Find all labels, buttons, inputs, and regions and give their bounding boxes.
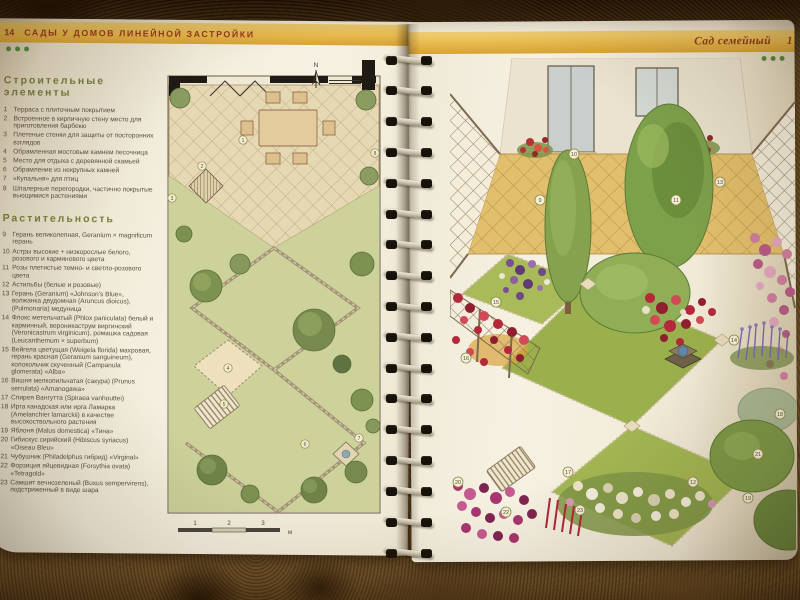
svg-text:19: 19 [745,496,751,502]
item-text: Шпалерные перегородки, частично покрытые… [13,185,155,201]
coil [383,331,435,343]
bench-illustration [486,446,535,492]
svg-text:6: 6 [304,442,307,448]
svg-text:1: 1 [242,138,245,144]
coil [383,393,435,405]
left-header-title: САДЫ У ДОМОВ ЛИНЕЙНОЙ ЗАСТРОЙКИ [24,27,255,39]
item-text: Самшит вечнозеленый (Buxus sempervirens)… [10,479,152,495]
illustration-marker: 11 [671,195,681,205]
item-number: 14 [1,314,11,344]
item-text: Форзиция яйцевидная (Forsythia ovata) «T… [10,462,152,478]
svg-text:2: 2 [201,164,204,170]
plan-marker: 3 [168,194,176,202]
illustration-marker: 10 [569,149,579,159]
item-text: Обрамленная мостовым камнем песочница [13,148,155,157]
spiral-binding [383,54,435,559]
svg-text:3: 3 [171,196,174,202]
svg-text:14: 14 [731,338,737,344]
item-number: 2 [3,115,13,130]
right-header-title: Сад семейный [694,35,771,47]
svg-text:N: N [314,62,319,69]
rating-dots-left [6,46,29,51]
item-text: Чубушник (Philadelphus гибрид) «Virginal… [10,453,152,462]
list-item: 15 Вейгела цветущая (Weigela florida) ма… [1,346,153,377]
green-dot [15,46,20,51]
center-shrub [580,253,690,333]
svg-text:17: 17 [565,470,571,476]
section-heading-plants: Растительность [3,212,121,225]
svg-text:8: 8 [374,151,377,157]
item-text: Место для отдыха с деревянной скамьей [13,158,155,167]
section-heading-building: Строительные элементы [4,74,122,100]
item-number: 7 [3,176,13,184]
coil [383,547,435,559]
illustration-marker: 21 [753,449,763,459]
right-page-number: 1 [787,35,793,47]
list-item: 4 Обрамленная мостовым камнем песочница [3,148,155,157]
item-number: 18 [1,403,11,426]
svg-text:9: 9 [538,198,541,204]
svg-text:22: 22 [503,510,509,516]
plan-marker: 8 [371,149,379,157]
list-item: 10 Астры высокие + низкорослые белого, р… [2,248,154,264]
coil [383,301,435,313]
item-text: Гибискус сирийский (Hibiscus syriacus) «… [11,437,153,453]
green-dot [6,46,11,51]
svg-text:15: 15 [493,300,499,306]
item-text: Ирга канадская или ирга Ламарка (Amelanc… [11,403,153,427]
svg-text:11: 11 [673,198,679,204]
list-item: 18 Ирга канадская или ирга Ламарка (Amel… [1,403,153,427]
illustration-marker: 23 [575,505,585,515]
right-header-band: Сад семейный 1 [408,30,794,54]
illustration-marker: 13 [715,177,725,187]
item-text: Обрамление из некрупных камней [13,167,155,176]
building-elements-list: 1 Терраса с плиточным покрытием 2 Встрое… [3,106,156,201]
list-item: 13 Герань (Geranium) «Johnson's Blue», в… [2,290,154,314]
list-item: 6 Обрамление из некрупных камней [3,167,155,176]
list-item: 8 Шпалерные перегородки, частично покрыт… [3,185,155,201]
item-text: Вишня мелкопильчатая (сакура) (Prunus se… [11,378,153,394]
left-page-number: 14 [4,27,14,37]
list-item: 2 Встроенное в кирпичную стену место для… [3,115,155,131]
list-item: 1 Терраса с плиточным покрытием [4,106,156,115]
list-item: 9 Герань великолепная, Geranium × magnif… [2,231,154,247]
list-item: 3 Плетеные стенки для защиты от посторон… [3,132,155,148]
item-text: Встроенное в кирпичную стену место для п… [13,115,155,131]
svg-text:м: м [288,530,292,536]
left-header-band: 14 САДЫ У ДОМОВ ЛИНЕЙНОЙ ЗАСТРОЙКИ [0,21,412,46]
list-item: 22 Форзиция яйцевидная (Forsythia ovata)… [0,462,152,478]
illustration-marker: 12 [688,477,698,487]
coil [383,85,435,97]
item-text: Вейгела цветущая (Weigela florida) махро… [11,346,153,377]
item-number: 3 [3,132,13,147]
item-number: 13 [2,290,12,313]
item-number: 17 [1,394,11,402]
svg-text:23: 23 [577,508,583,514]
plan-marker: 5 [220,400,228,408]
item-number: 16 [1,378,11,393]
illustration-marker: 14 [729,335,739,345]
svg-text:20: 20 [455,480,461,486]
list-item: 17 Спирея Вангутта (Spiraea vanhouttei) [1,394,153,403]
illustration-marker: 9 [535,195,545,205]
list-item: 21 Чубушник (Philadelphus гибрид) «Virgi… [0,453,152,462]
illustration-marker: 20 [453,477,463,487]
svg-text:4: 4 [227,366,230,372]
coil [383,362,435,374]
item-text: Спирея Вангутта (Spiraea vanhouttei) [11,394,153,403]
vegetation-list: 9 Герань великолепная, Geranium × magnif… [0,231,154,495]
coil [383,485,435,497]
coil [383,516,435,528]
item-number: 22 [0,462,10,477]
coil [383,54,435,66]
illustration-marker: 19 [743,493,753,503]
list-item: 16 Вишня мелкопильчатая (сакура) (Prunus… [1,378,153,394]
svg-text:21: 21 [755,452,761,458]
item-text: Герань (Geranium) «Johnson's Blue», волж… [12,290,154,314]
illustration-marker: 22 [501,507,511,517]
scale-bar: 1 2 3 м [178,521,292,536]
item-text: Терраса с плиточным покрытием [14,106,156,115]
plan-marker: 6 [301,440,309,448]
item-number: 11 [2,264,12,279]
item-number: 9 [2,231,12,246]
item-number: 21 [0,453,10,461]
item-number: 12 [2,281,12,289]
list-item: 7 «Купальня» для птиц [3,176,155,185]
svg-text:7: 7 [358,436,361,442]
illustration-marker: 15 [491,297,501,307]
coil [383,424,435,436]
plan-marker: 1 [239,136,247,144]
list-item: 5 Место для отдыха с деревянной скамьей [3,158,155,167]
list-item: 11 Розы плетистые темно- и светло-розово… [2,264,154,280]
illustration-marker: 16 [461,353,471,363]
list-item: 20 Гибискус сирийский (Hibiscus syriacus… [1,437,153,453]
garden-plan-drawing: N [166,58,382,546]
list-item: 12 Астильбы (белые и розовые) [2,281,154,290]
item-text: «Купальня» для птиц [13,176,155,185]
list-item: 19 Яблоня (Malus domestica) «Тина» [1,428,153,437]
plan-marker: 4 [224,364,232,372]
svg-text:16: 16 [463,356,469,362]
coil [383,146,435,158]
item-text: Астры высокие + низкорослые белого, розо… [12,248,154,264]
coil [383,177,435,189]
svg-text:10: 10 [571,152,577,158]
item-text: Астильбы (белые и розовые) [12,281,154,290]
illustration-marker: 18 [775,409,785,419]
coil [383,208,435,220]
plan-marker: 7 [355,434,363,442]
coil [383,455,435,467]
item-number: 5 [3,158,13,166]
coil [383,116,435,128]
illustration-marker: 17 [563,467,573,477]
item-number: 8 [3,185,13,200]
svg-text:13: 13 [717,180,723,186]
item-number: 20 [1,437,11,452]
item-text: Розы плетистые темно- и светло-розового … [12,265,154,281]
lavender-patch [730,321,794,370]
item-number: 10 [2,248,12,263]
list-item: 14 Флокс метельчатый (Phlox paniculata) … [1,314,153,345]
item-text: Яблоня (Malus domestica) «Тина» [11,428,153,437]
item-number: 19 [1,428,11,436]
svg-text:1: 1 [193,521,197,527]
list-item: 23 Самшит вечнозеленый (Buxus sempervire… [0,479,152,495]
svg-text:12: 12 [690,480,696,486]
svg-text:18: 18 [777,412,783,418]
item-number: 6 [3,167,13,175]
garden-illustration: 9 10 11 12 13 14 15 16 17 18 19 20 21 22… [450,58,796,552]
item-number: 23 [0,479,10,494]
magenta-flower-bed [453,481,537,543]
left-text-column: Строительные элементы 1 Терраса с плиточ… [0,74,156,497]
item-text: Флокс метельчатый (Phlox paniculata) бел… [11,314,153,345]
svg-text:2: 2 [227,521,231,527]
svg-text:3: 3 [261,521,265,527]
item-number: 4 [3,148,13,156]
item-number: 15 [1,346,11,376]
coil [383,239,435,251]
green-dot [24,46,29,51]
photo-of-open-garden-book: 14 САДЫ У ДОМОВ ЛИНЕЙНОЙ ЗАСТРОЙКИ Строи… [0,0,800,600]
item-text: Плетеные стенки для защиты от посторонни… [13,132,155,148]
svg-text:5: 5 [223,402,226,408]
coil [383,270,435,282]
plan-marker: 2 [198,162,206,170]
item-text: Герань великолепная, Geranium × magnific… [12,231,154,247]
item-number: 1 [4,106,14,114]
